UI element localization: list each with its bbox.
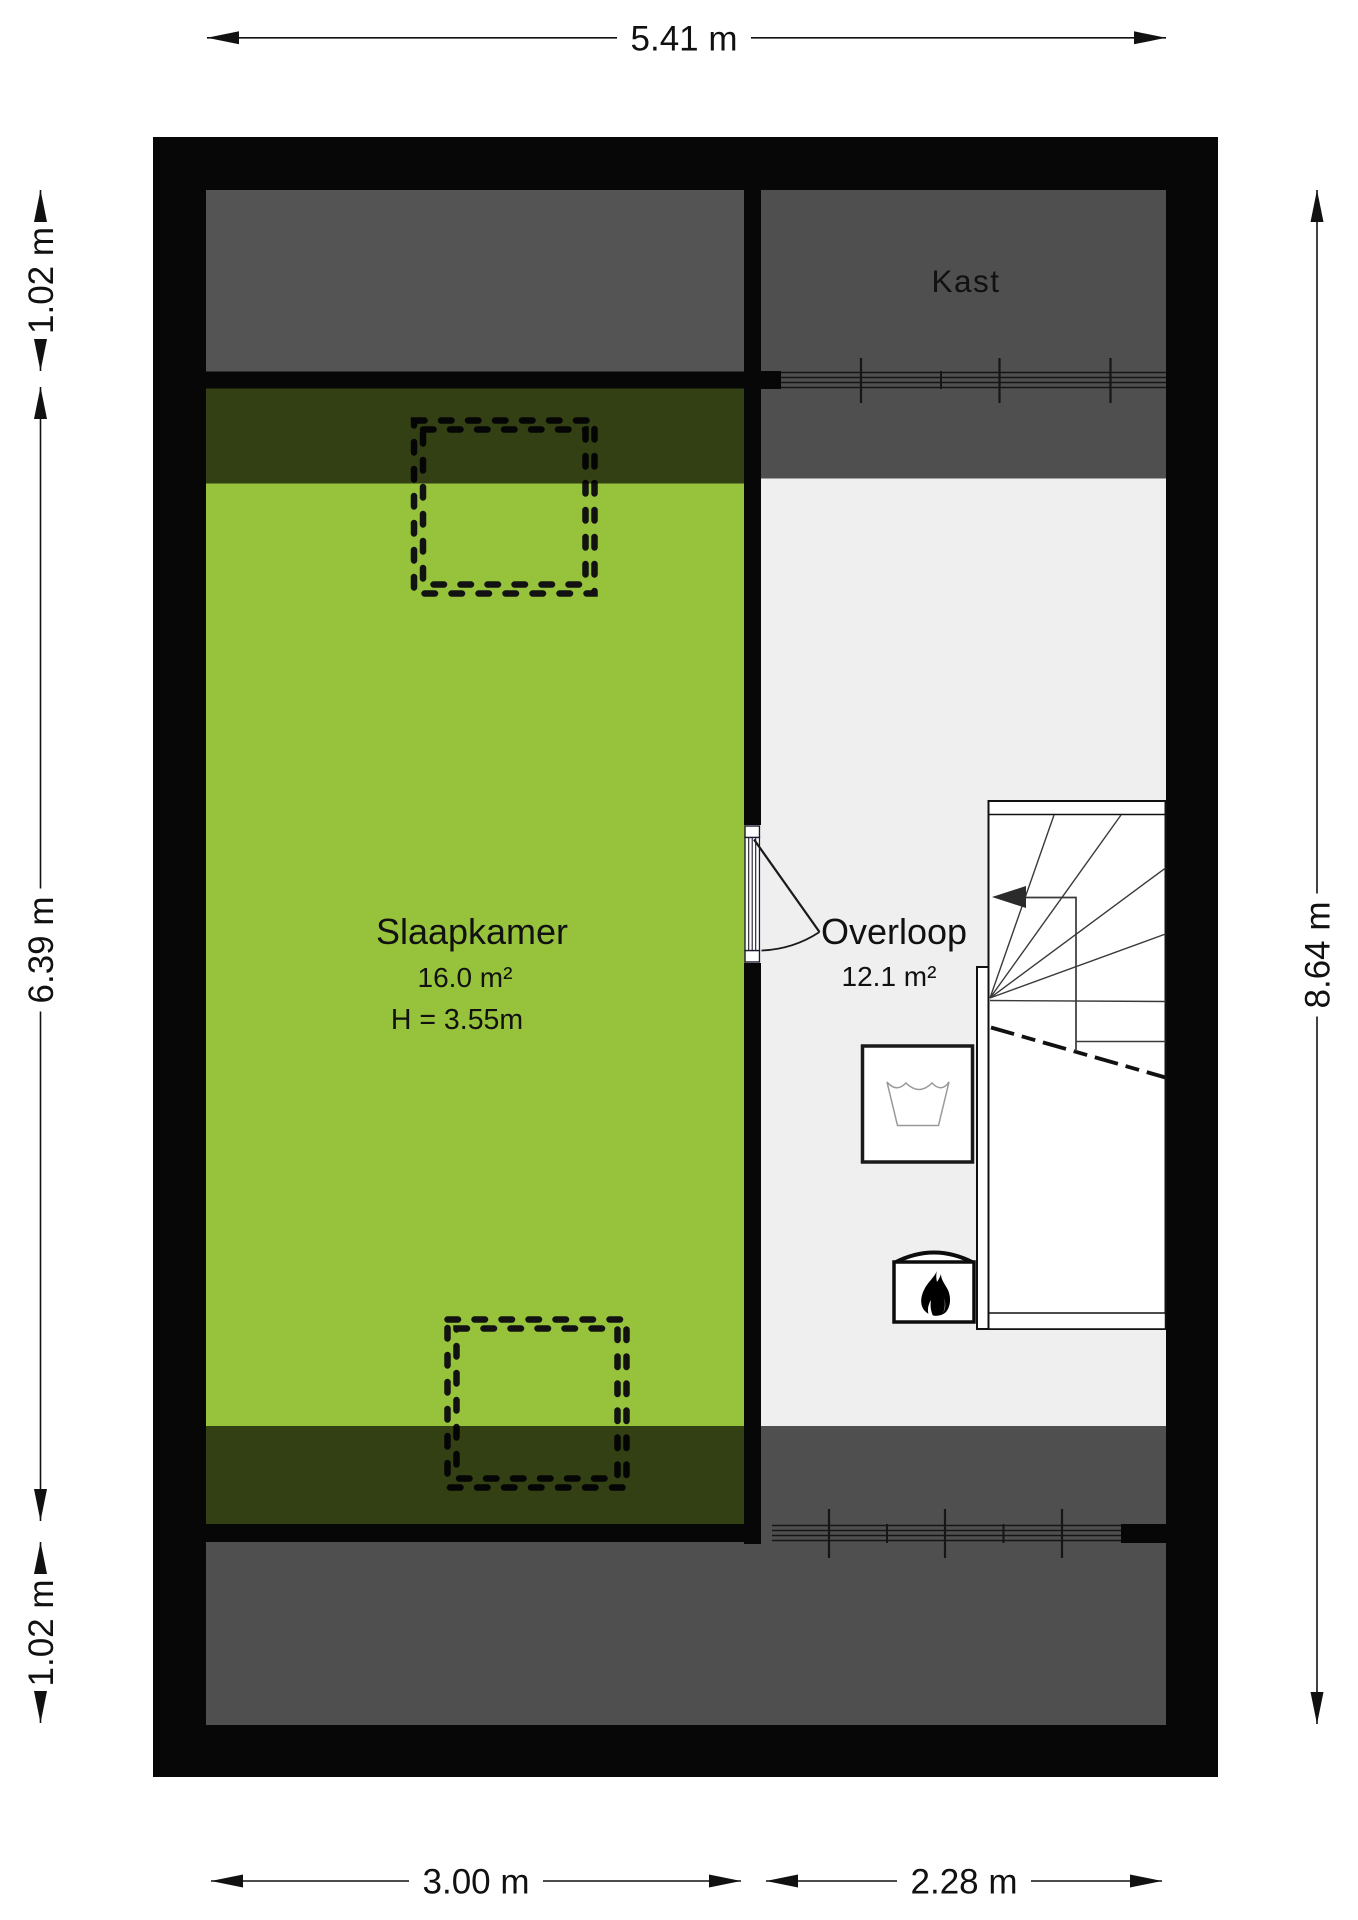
- svg-text:Slaapkamer: Slaapkamer: [376, 911, 568, 952]
- svg-text:Overloop: Overloop: [821, 911, 967, 952]
- svg-text:1.02 m: 1.02 m: [22, 227, 61, 334]
- svg-text:Kast: Kast: [931, 263, 1000, 299]
- svg-text:12.1 m²: 12.1 m²: [842, 961, 937, 992]
- svg-text:16.0 m²: 16.0 m²: [418, 962, 513, 993]
- svg-text:2.28 m: 2.28 m: [911, 1862, 1018, 1901]
- svg-text:6.39 m: 6.39 m: [22, 897, 61, 1004]
- svg-text:3.00 m: 3.00 m: [423, 1862, 530, 1901]
- svg-text:H = 3.55m: H = 3.55m: [391, 1004, 523, 1036]
- svg-text:5.41 m: 5.41 m: [631, 19, 738, 58]
- svg-text:1.02 m: 1.02 m: [22, 1580, 61, 1687]
- svg-text:8.64 m: 8.64 m: [1299, 902, 1338, 1009]
